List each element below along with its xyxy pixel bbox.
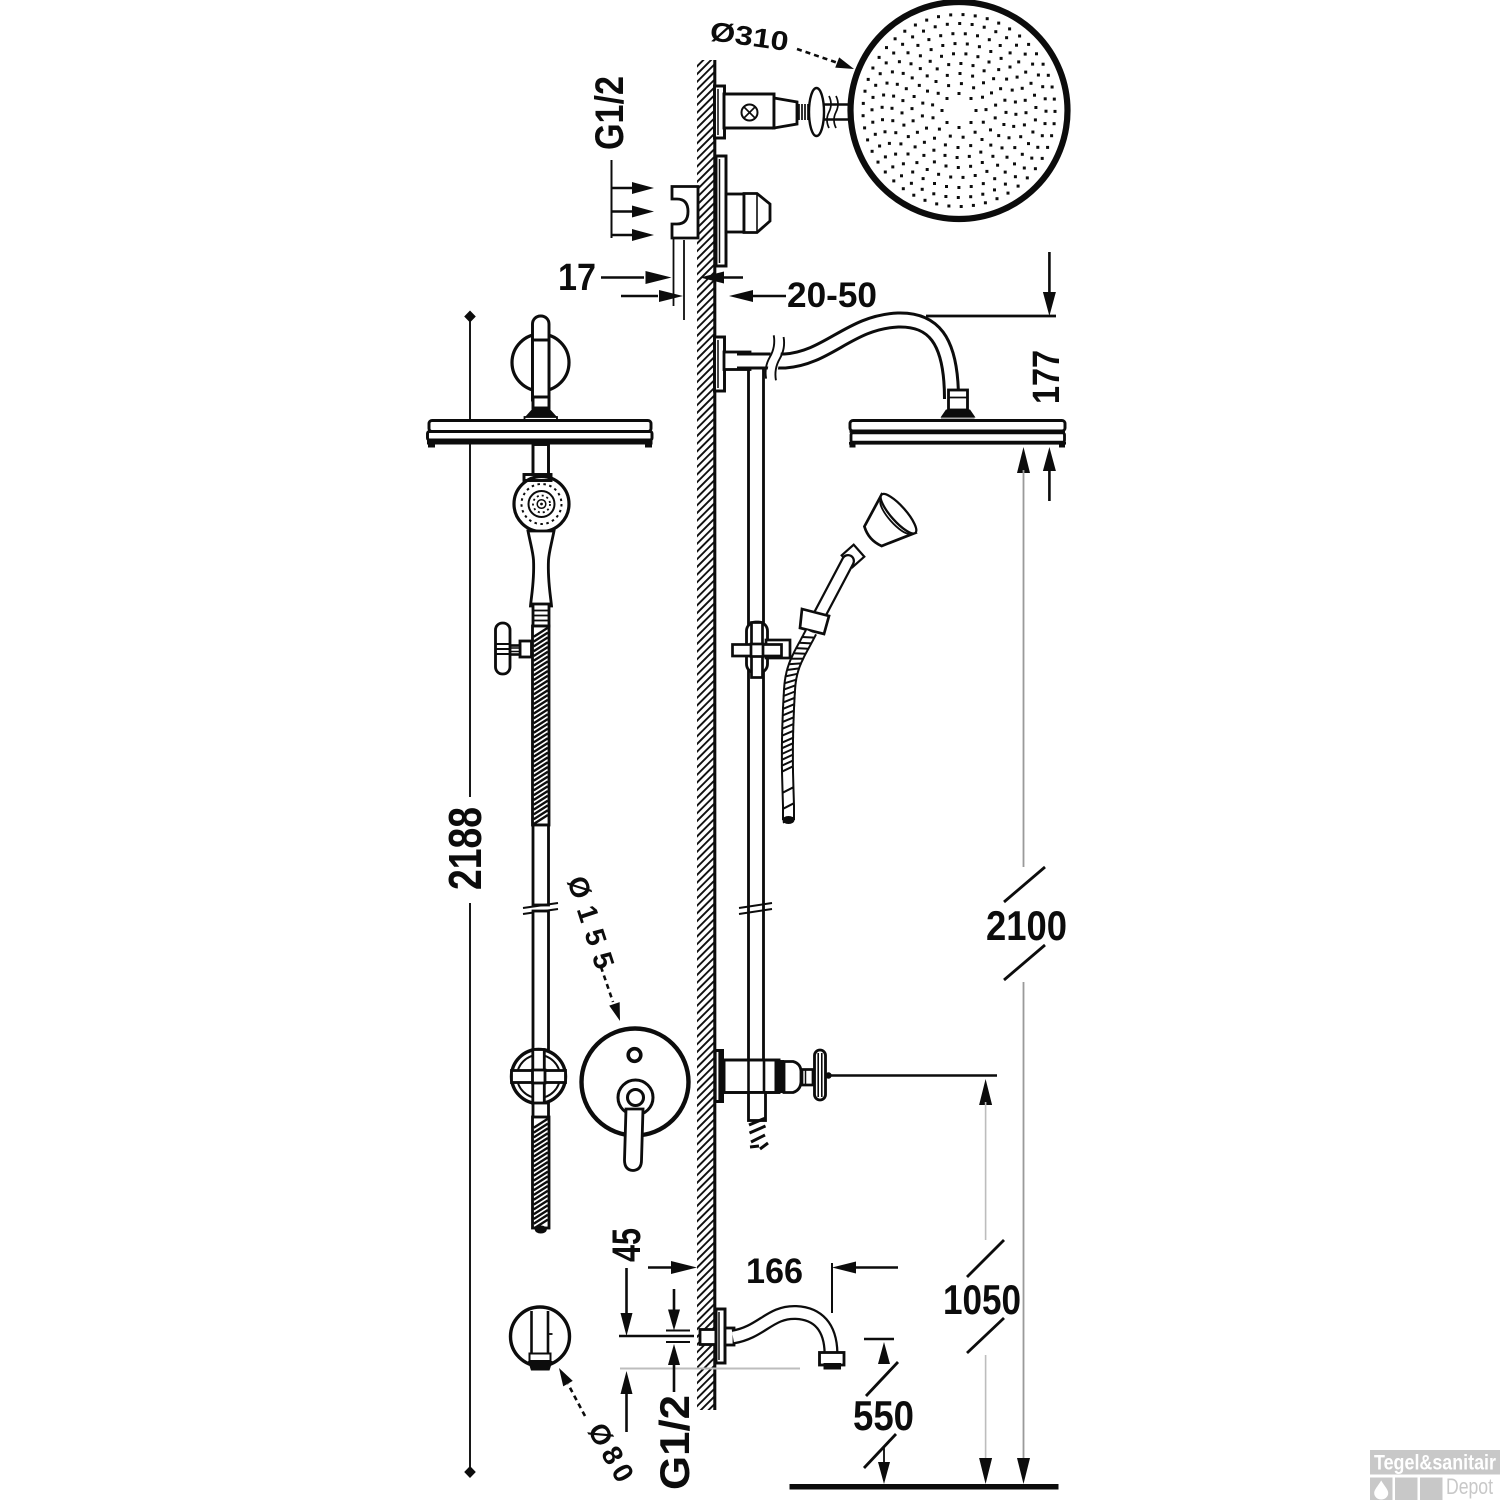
svg-text:G1/2: G1/2 — [588, 76, 632, 150]
svg-text:G1/2: G1/2 — [651, 1395, 698, 1490]
svg-text:550: 550 — [853, 1392, 914, 1439]
svg-text:17: 17 — [558, 257, 596, 299]
svg-text:166: 166 — [746, 1252, 803, 1291]
svg-text:20-50: 20-50 — [787, 276, 877, 315]
svg-text:Tegel&sanitair: Tegel&sanitair — [1374, 1452, 1496, 1475]
svg-text:2100: 2100 — [986, 902, 1067, 949]
svg-text:45: 45 — [605, 1228, 649, 1262]
svg-text:1050: 1050 — [943, 1276, 1021, 1323]
svg-text:Depot: Depot — [1446, 1474, 1493, 1499]
svg-text:177: 177 — [1026, 350, 1068, 404]
svg-text:2188: 2188 — [439, 807, 491, 890]
